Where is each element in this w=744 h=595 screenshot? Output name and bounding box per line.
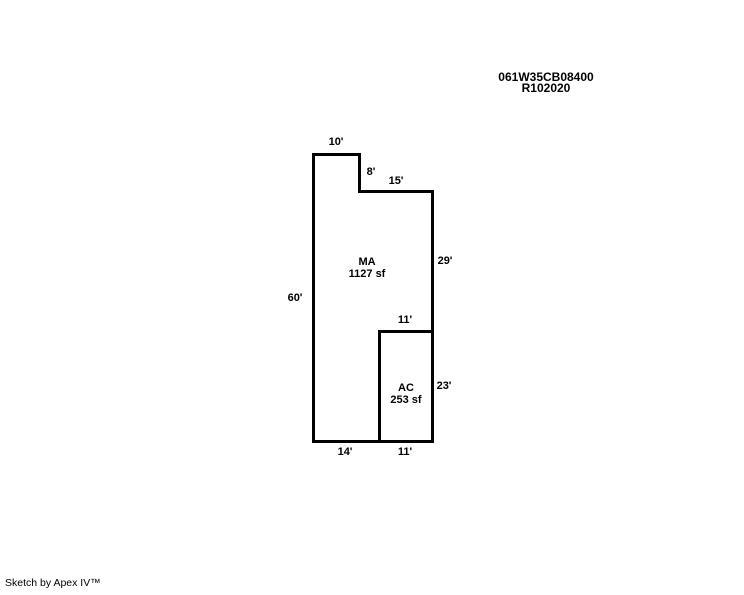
parcel-id-block: 061W35CB08400 R102020 bbox=[498, 72, 593, 94]
dim-right-upper-height: 29' bbox=[438, 255, 453, 267]
record-number: R102020 bbox=[498, 83, 593, 94]
dim-ac-top-width: 11' bbox=[398, 314, 412, 326]
dim-bottom-left-width: 14' bbox=[338, 446, 353, 458]
dim-top-width: 10' bbox=[329, 136, 344, 148]
dim-notch-height: 8' bbox=[367, 166, 376, 178]
dim-upper-right-width: 15' bbox=[389, 175, 404, 187]
main-area-label: MA 1127 sf bbox=[349, 256, 386, 280]
ac-area-size: 253 sf bbox=[390, 394, 421, 406]
main-area-size: 1127 sf bbox=[349, 268, 386, 280]
ac-area-code: AC bbox=[390, 382, 421, 394]
ac-area-label: AC 253 sf bbox=[390, 382, 421, 406]
building-sketch bbox=[0, 0, 744, 595]
dim-left-height: 60' bbox=[288, 292, 303, 304]
main-area-code: MA bbox=[349, 256, 386, 268]
dim-bottom-right-width: 11' bbox=[398, 446, 412, 458]
apex-sketch-page: 061W35CB08400 R102020 10' 8' 15' 29' 60'… bbox=[0, 0, 744, 595]
dim-ac-right-height: 23' bbox=[437, 380, 452, 392]
sketch-credit: Sketch by Apex IV™ bbox=[5, 577, 101, 589]
